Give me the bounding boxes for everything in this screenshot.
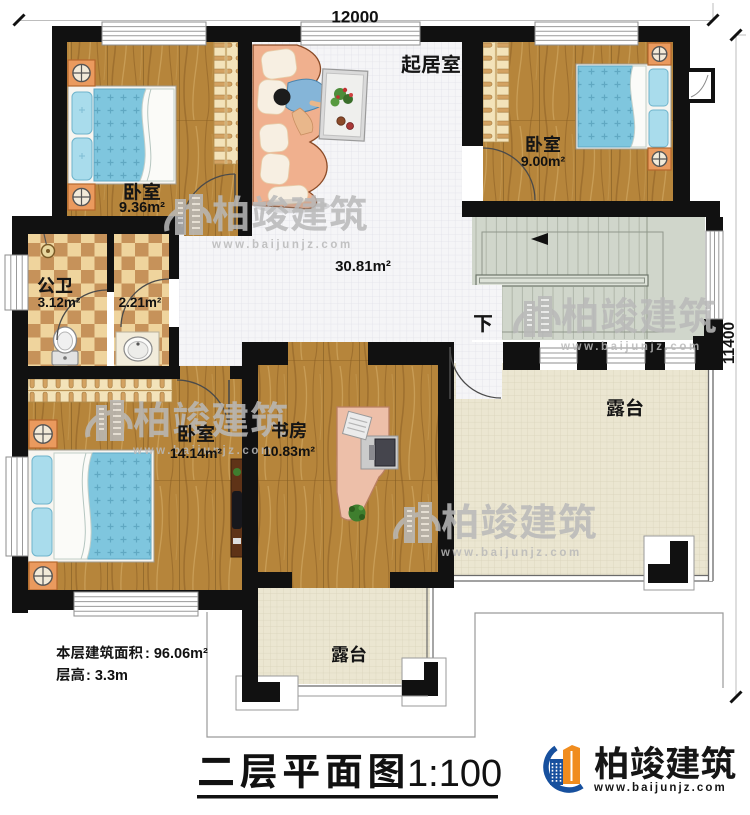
- svg-text:10.83m²: 10.83m²: [263, 443, 315, 459]
- svg-text:: 3.3m: : 3.3m: [86, 668, 128, 684]
- svg-text:9.36m²: 9.36m²: [119, 200, 165, 216]
- svg-text:9.00m²: 9.00m²: [521, 153, 566, 169]
- svg-text:30.81m²: 30.81m²: [335, 258, 391, 275]
- svg-text:12000: 12000: [331, 8, 378, 27]
- svg-text:14.14m²: 14.14m²: [170, 445, 222, 461]
- svg-text:3.12m²: 3.12m²: [38, 295, 81, 310]
- svg-text:www.baijunjz.com: www.baijunjz.com: [593, 782, 727, 794]
- svg-text:2.21m²: 2.21m²: [119, 295, 162, 310]
- svg-text:1:100: 1:100: [407, 753, 502, 795]
- svg-text:: 96.06m²: : 96.06m²: [145, 646, 208, 662]
- svg-text:11400: 11400: [721, 322, 738, 364]
